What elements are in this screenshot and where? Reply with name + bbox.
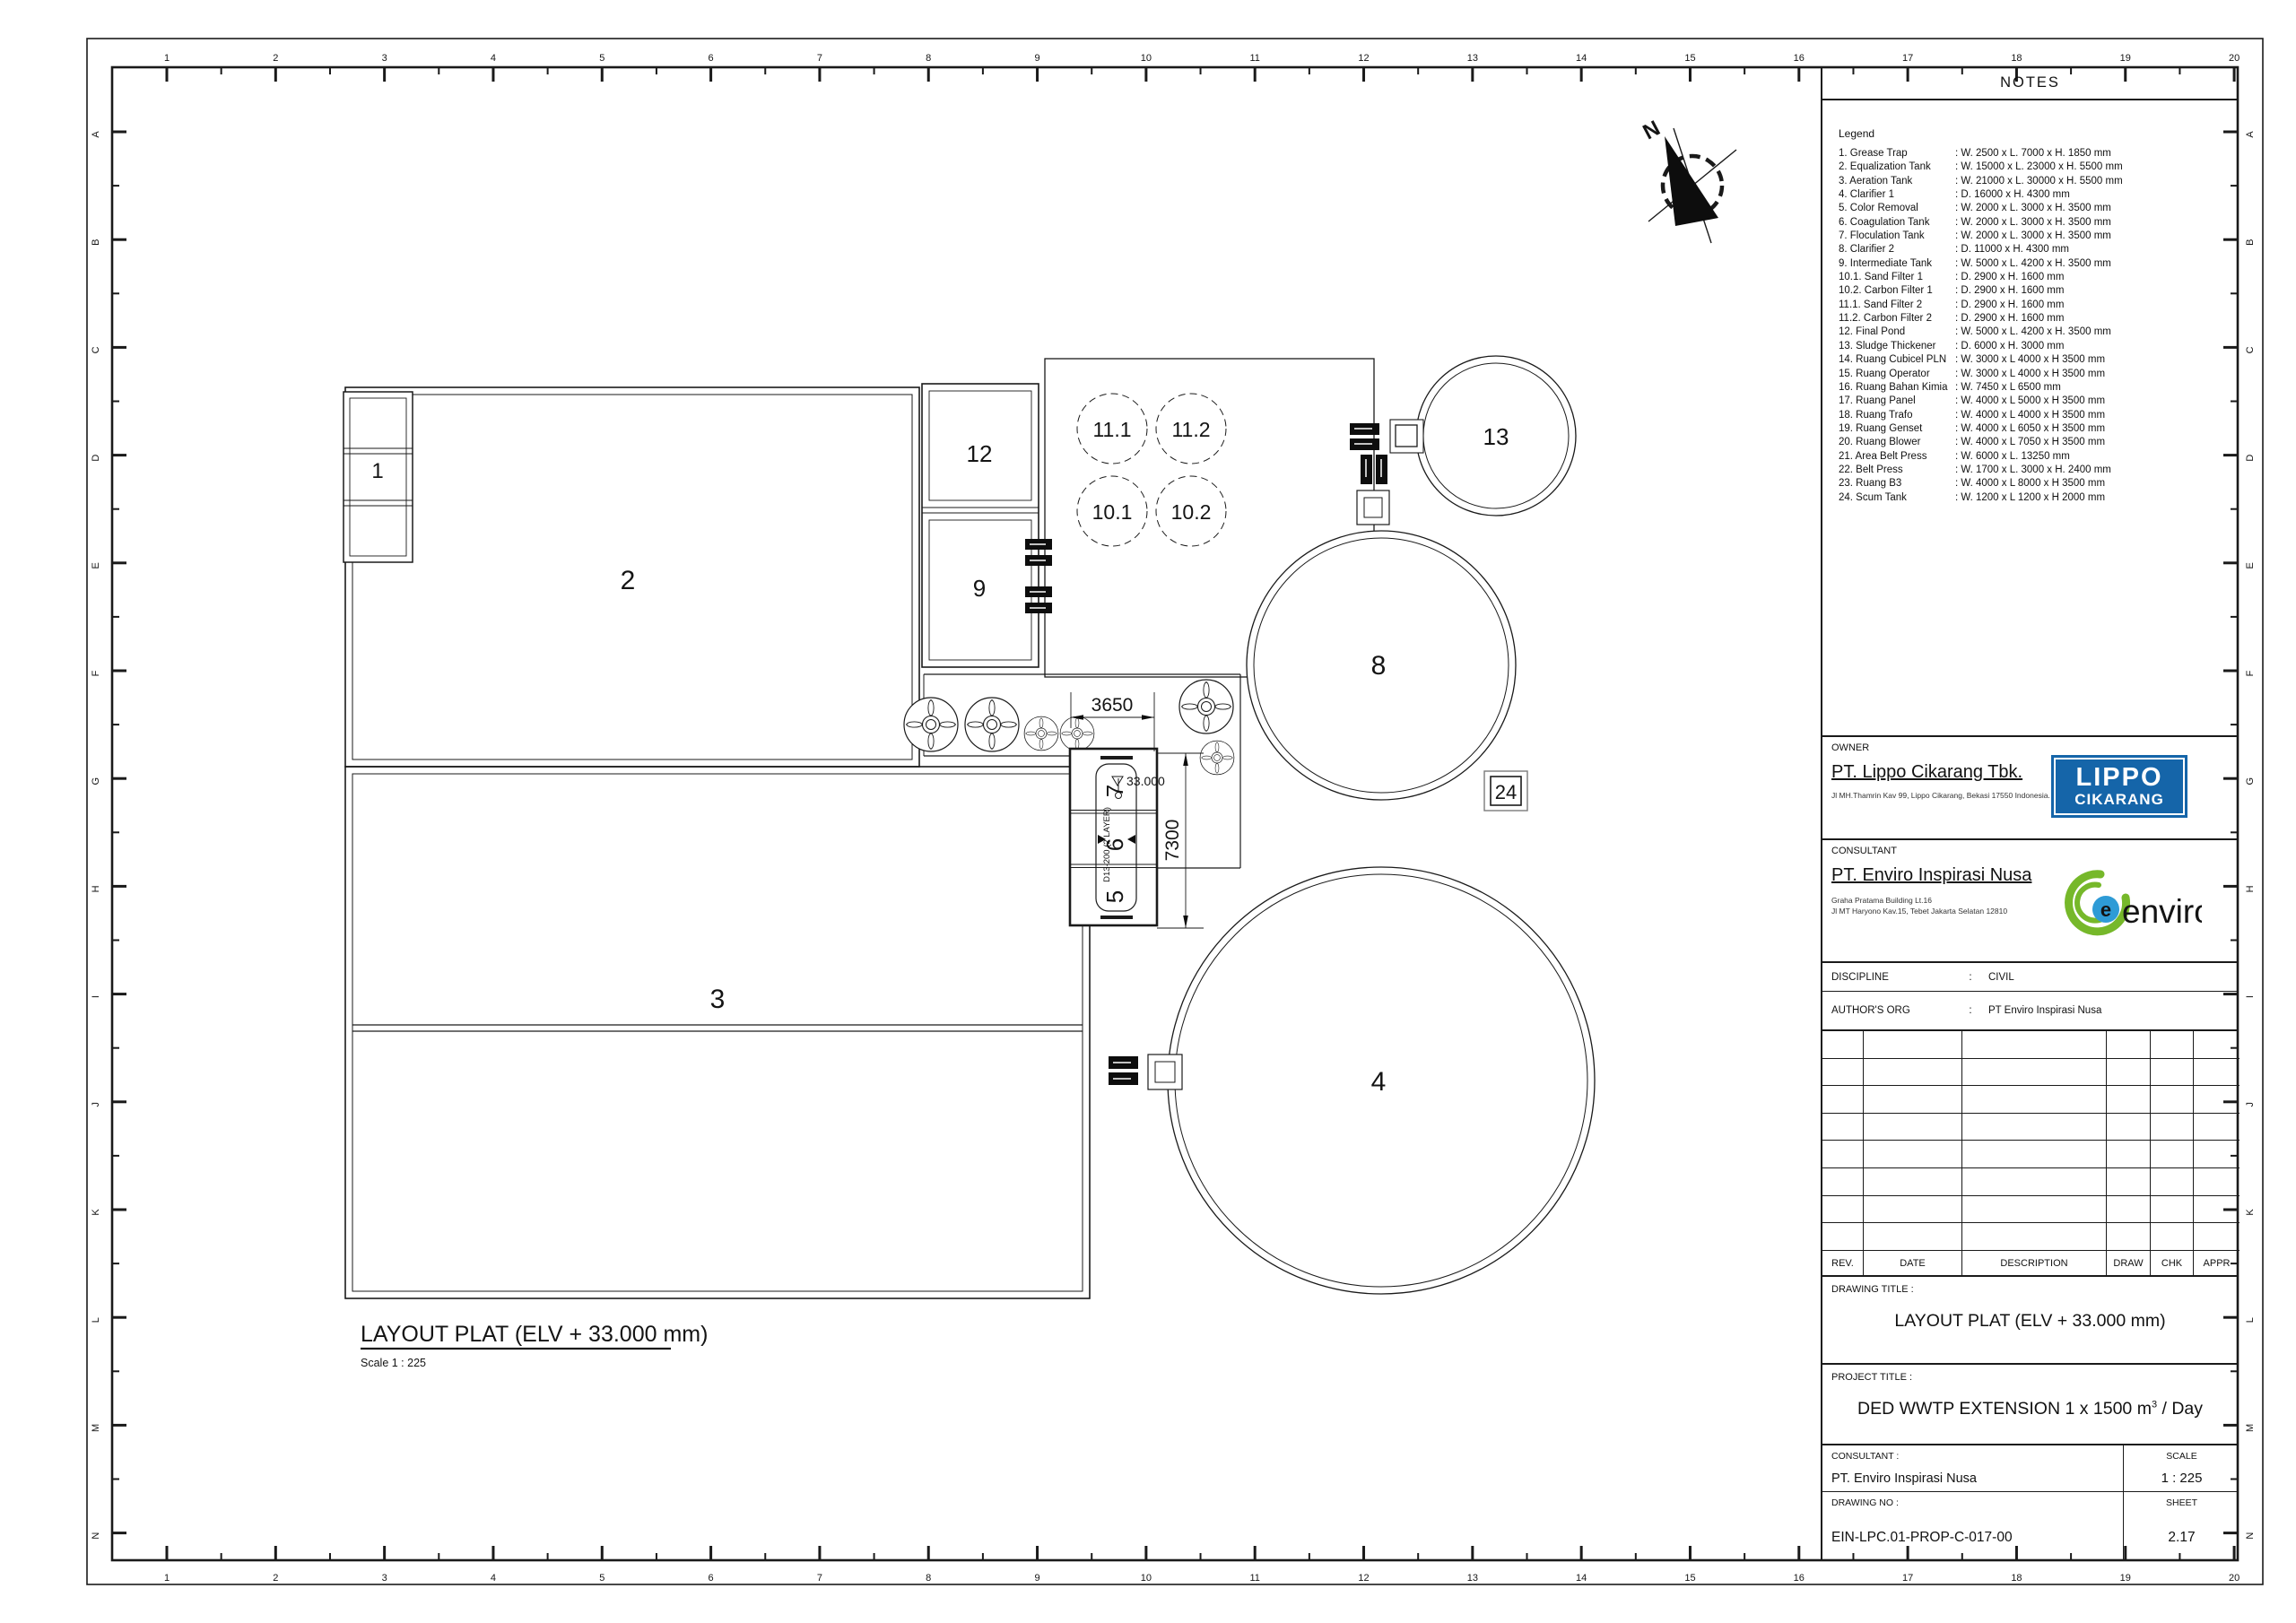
legend-section: Legend 1. Grease Trap: W. 2500 x L. 7000… [1822,100,2238,735]
ruler-label: 3 [382,1573,387,1584]
legend-item-label: 2. Equalization Tank [1839,161,1955,174]
label-equalization-tank: 2 [621,566,636,595]
ruler-label: 18 [2011,1573,2022,1584]
revision-cell [1962,1141,2107,1168]
aeration-tank-outline [345,767,1090,1298]
legend-list: 1. Grease Trap: W. 2500 x L. 7000 x H. 1… [1839,147,2123,505]
ruler-label: 16 [1794,53,1805,64]
legend-item: 2. Equalization Tank: W. 15000 x L. 2300… [1839,161,2123,174]
revision-cell [1962,1168,2107,1196]
legend-item-spec: : W. 4000 x L 5000 x H 3500 mm [1955,395,2105,408]
ruler-label: 16 [1794,1573,1805,1584]
drawing-no-value: EIN-LPC.01-PROP-C-017-00 [1831,1530,2013,1546]
revision-row [1822,1059,2238,1087]
ruler-label: D [91,455,101,462]
legend-item: 1. Grease Trap: W. 2500 x L. 7000 x H. 1… [1839,147,2123,161]
project-title-section: PROJECT TITLE : DED WWTP EXTENSION 1 x 1… [1822,1363,2238,1444]
revision-cell [2194,1059,2239,1087]
label-floculation-tank: 7 [1101,785,1128,797]
legend-item-label: 24. Scum Tank [1839,491,1955,505]
ruler-label: 18 [2011,53,2022,64]
ruler-label: D [2245,455,2256,462]
ruler-label: J [91,1102,101,1107]
legend-item: 11.1. Sand Filter 2: D. 2900 x H. 1600 m… [1839,299,2123,312]
legend-item: 3. Aeration Tank: W. 21000 x L. 30000 x … [1839,175,2123,188]
legend-item-label: 4. Clarifier 1 [1839,188,1955,202]
dim-7300-text: 7300 [1162,820,1183,862]
revision-row [1822,1223,2238,1251]
ruler-label: 1 [164,1573,170,1584]
discipline-value: CIVIL [1988,972,2014,983]
discipline-separator: : [1952,972,1988,983]
legend-item-label: 12. Final Pond [1839,325,1955,339]
ruler-label: C [2245,346,2256,353]
ruler-label: 6 [709,1573,714,1584]
legend-item-spec: : D. 11000 x H. 4300 mm [1955,243,2069,256]
legend-item: 24. Scum Tank: W. 1200 x L 1200 x H 2000… [1839,491,2123,505]
revision-row [1822,1031,2238,1059]
revision-cell [1864,1031,1962,1059]
ruler-label: 3 [382,53,387,64]
label-intermediate-tank: 9 [973,575,986,602]
legend-item: 4. Clarifier 1: D. 16000 x H. 4300 mm [1839,188,2123,202]
legend-item-spec: : W. 15000 x L. 23000 x H. 5500 mm [1955,161,2123,174]
ruler-label: M [91,1424,101,1432]
legend-item-spec: : W. 4000 x L 6050 x H 3500 mm [1955,422,2105,436]
revision-cell [1864,1114,1962,1141]
ruler-label: 7 [817,53,822,64]
revision-row [1822,1114,2238,1141]
legend-item-label: 21. Area Belt Press [1839,450,1955,464]
legend-item-label: 16. Ruang Bahan Kimia [1839,381,1955,395]
pump-group-clarifier1 [1109,1055,1182,1089]
revision-cell [1864,1141,1962,1168]
revision-cell [1822,1031,1864,1059]
legend-item: 10.2. Carbon Filter 1: D. 2900 x H. 1600… [1839,284,2123,298]
revision-cell [2151,1059,2194,1087]
ruler-label: 10 [1141,53,1152,64]
ruler-label: 9 [1034,1573,1039,1584]
revision-cell [1864,1168,1962,1196]
revision-cell [1822,1168,1864,1196]
legend-item-label: 7. Floculation Tank [1839,230,1955,243]
legend-item-label: 9. Intermediate Tank [1839,257,1955,271]
legend-item-spec: : D. 2900 x H. 1600 mm [1955,312,2064,325]
ruler-label: 17 [1902,1573,1913,1584]
revision-row [1822,1168,2238,1196]
consultant-company: PT. Enviro Inspirasi Nusa [1831,865,2031,886]
ruler-label: 8 [926,53,931,64]
legend-item-spec: : W. 4000 x L 8000 x H 3500 mm [1955,477,2105,490]
legend-item: 19. Ruang Genset: W. 4000 x L 6050 x H 3… [1839,422,2123,436]
ruler-label: 19 [2120,53,2131,64]
revision-empty-rows [1822,1031,2238,1251]
ruler-label: 15 [1684,53,1695,64]
label-carbon-filter-1: 10.2 [1171,500,1212,524]
scale-label: SCALE [2124,1451,2239,1462]
revision-cell [2151,1141,2194,1168]
ruler-label: 13 [1467,1573,1478,1584]
legend-item-spec: : D. 6000 x H. 3000 mm [1955,340,2064,353]
drawing-title-value: LAYOUT PLAT (ELV + 33.000 mm) [1822,1311,2238,1332]
revision-cell [2107,1223,2151,1251]
legend-item: 12. Final Pond: W. 5000 x L. 4200 x H. 3… [1839,325,2123,339]
owner-company: PT. Lippo Cikarang Tbk. [1831,762,2022,783]
legend-item-label: 11.1. Sand Filter 2 [1839,299,1955,312]
ruler-label: 2 [273,1573,278,1584]
owner-section: OWNER PT. Lippo Cikarang Tbk. Jl MH.Tham… [1822,735,2238,838]
revision-cell [1864,1196,1962,1224]
scale-value: 1 : 225 [2124,1471,2239,1486]
legend-item: 22. Belt Press: W. 1700 x L. 3000 x H. 2… [1839,464,2123,477]
authors-org-label: AUTHOR'S ORG [1822,1005,1952,1016]
legend-item-spec: : W. 5000 x L. 4200 x H. 3500 mm [1955,325,2111,339]
revision-cell [2107,1031,2151,1059]
ruler-label: 6 [709,53,714,64]
enviro-logo-text: enviro [2122,893,2202,930]
revision-cell [2151,1114,2194,1141]
ruler-label: 14 [1576,1573,1587,1584]
lippo-logo-text2: CIKARANG [2074,791,2164,808]
dim-3650-text: 3650 [1091,695,1134,716]
ruler-label: F [2245,670,2256,676]
authors-org-row: AUTHOR'S ORG : PT Enviro Inspirasi Nusa [1822,991,2238,1029]
revision-cell [1962,1059,2107,1087]
legend-item: 15. Ruang Operator: W. 3000 x L 4000 x H… [1839,368,2123,381]
legend-item-spec: : D. 2900 x H. 1600 mm [1955,271,2064,284]
final-pond-outline [922,384,1039,667]
plan-caption: LAYOUT PLAT (ELV + 33.000 mm) Scale 1 : … [361,1322,708,1369]
drawing-title-label: DRAWING TITLE : [1831,1284,1914,1295]
ruler-label: 4 [491,53,496,64]
owner-address: Jl MH.Thamrin Kav 99, Lippo Cikarang, Be… [1831,791,2050,800]
lippo-logo-frame: LIPPO CIKARANG [2054,758,2185,815]
enviro-logo: e enviro [2054,858,2202,955]
draw-col-header: DRAW [2107,1251,2151,1276]
elevation-text: 33.000 [1126,774,1165,788]
legend-item: 13. Sludge Thickener: D. 6000 x H. 3000 … [1839,340,2123,353]
ruler-label: 11 [1249,1573,1259,1584]
ruler-label: B [2245,239,2256,246]
revision-cell [1864,1223,1962,1251]
consultant-scale-row: CONSULTANT : PT. Enviro Inspirasi Nusa S… [1822,1444,2238,1491]
ruler-label: 20 [2229,1573,2239,1584]
revision-cell [1962,1196,2107,1224]
ruler-label: 8 [926,1573,931,1584]
revision-cell [2107,1196,2151,1224]
ruler-label: 13 [1467,53,1478,64]
revision-cell [2107,1059,2151,1087]
lippo-logo-text1: LIPPO [2075,765,2162,791]
legend-item-label: 19. Ruang Genset [1839,422,1955,436]
legend-item: 14. Ruang Cubicel PLN: W. 3000 x L 4000 … [1839,353,2123,367]
legend-item-label: 1. Grease Trap [1839,147,1955,161]
ruler-label: H [91,885,101,892]
legend-item-spec: : W. 3000 x L 4000 x H 3500 mm [1955,353,2105,367]
drawing-no-sheet-row: DRAWING NO : EIN-LPC.01-PROP-C-017-00 SH… [1822,1491,2238,1560]
legend-item-label: 3. Aeration Tank [1839,175,1955,188]
label-grease-trap: 1 [371,459,383,483]
ruler-label: 2 [273,53,278,64]
label-sand-filter-1: 10.1 [1092,500,1133,524]
legend-item-spec: : W. 21000 x L. 30000 x H. 5500 mm [1955,175,2123,188]
rebar-note-text: D13-200 (2 LAYER) [1102,807,1112,882]
legend-item: 20. Ruang Blower: W. 4000 x L 7050 x H 3… [1839,436,2123,449]
consultant-address2: Jl MT Haryono Kav.15, Tebet Jakarta Sela… [1831,907,2007,916]
legend-item-label: 6. Coagulation Tank [1839,216,1955,230]
revision-cell [2194,1031,2239,1059]
ruler-label: N [2245,1532,2256,1540]
revision-cell [2194,1141,2239,1168]
ruler-label: H [2245,885,2256,892]
sheet-cell: SHEET 2.17 [2123,1492,2239,1560]
ruler-label: 1 [164,53,170,64]
revision-cell [2194,1114,2239,1141]
project-title-prefix: DED WWTP EXTENSION 1 x 1500 m [1857,1399,2152,1419]
legend-item-spec: : W. 2000 x L. 3000 x H. 3500 mm [1955,202,2111,215]
discipline-row: DISCIPLINE : CIVIL [1822,961,2238,991]
owner-label: OWNER [1831,742,1869,753]
revision-cell [1962,1223,2107,1251]
legend-item-label: 13. Sludge Thickener [1839,340,1955,353]
ruler-label: G [2245,777,2256,785]
revision-cell [2194,1168,2239,1196]
revision-cell [1962,1114,2107,1141]
legend-item: 21. Area Belt Press: W. 6000 x L. 13250 … [1839,450,2123,464]
legend-item-label: 20. Ruang Blower [1839,436,1955,449]
ruler-label: I [2245,995,2256,998]
rev-col-header: REV. [1822,1251,1864,1276]
legend-item-spec: : D. 2900 x H. 1600 mm [1955,299,2064,312]
ruler-label: 20 [2229,53,2239,64]
date-col-header: DATE [1864,1251,1962,1276]
label-final-pond: 12 [967,440,993,467]
legend-item-spec: : W. 4000 x L 7050 x H 3500 mm [1955,436,2105,449]
legend-item: 9. Intermediate Tank: W. 5000 x L. 4200 … [1839,257,2123,271]
label-scum-tank: 24 [1495,781,1517,803]
ruler-label: C [91,346,101,353]
legend-item-spec: : W. 1200 x L 1200 x H 2000 mm [1955,491,2105,505]
revision-cell [2151,1223,2194,1251]
authors-org-value: PT Enviro Inspirasi Nusa [1988,1005,2101,1016]
legend-item-label: 10.2. Carbon Filter 1 [1839,284,1955,298]
title-block: NOTES Legend 1. Grease Trap: W. 2500 x L… [1821,67,2238,1560]
revision-table: REV. DATE DESCRIPTION DRAW CHK APPR [1822,1029,2238,1275]
legend-item: 18. Ruang Trafo: W. 4000 x L 4000 x H 35… [1839,409,2123,422]
revision-cell [1822,1059,1864,1087]
ruler-label: G [91,777,101,785]
description-col-header: DESCRIPTION [1962,1251,2107,1276]
ruler-label: 4 [491,1573,496,1584]
legend-item-label: 15. Ruang Operator [1839,368,1955,381]
legend-item: 7. Floculation Tank: W. 2000 x L. 3000 x… [1839,230,2123,243]
sheet-value: 2.17 [2124,1530,2239,1546]
project-title-value: DED WWTP EXTENSION 1 x 1500 m3 / Day [1822,1399,2238,1419]
revision-cell [1864,1086,1962,1114]
revision-cell [1822,1114,1864,1141]
label-aeration-tank: 3 [710,985,726,1014]
revision-cell [1822,1086,1864,1114]
revision-cell [2151,1196,2194,1224]
legend-title: Legend [1839,127,1874,140]
ruler-label: 11 [1249,53,1259,64]
notes-title: NOTES [2000,74,2060,91]
revision-cell [2151,1168,2194,1196]
legend-item: 23. Ruang B3: W. 4000 x L 8000 x H 3500 … [1839,477,2123,490]
legend-item-spec: : W. 7450 x L 6500 mm [1955,381,2061,395]
ruler-label: J [2245,1102,2256,1107]
drawing-sheet: 1122334455667788991010111112121313141415… [0,0,2296,1623]
legend-item-spec: : W. 2000 x L. 3000 x H. 3500 mm [1955,230,2111,243]
ruler-label: A [91,131,101,138]
ruler-label: 15 [1684,1573,1695,1584]
ruler-label: 5 [599,53,604,64]
notes-header: NOTES [1822,67,2238,100]
revision-cell [2107,1168,2151,1196]
drawing-title-section: DRAWING TITLE : LAYOUT PLAT (ELV + 33.00… [1822,1275,2238,1363]
ruler-label: A [2245,131,2256,138]
label-carbon-filter-2: 11.2 [1171,418,1210,441]
revision-cell [2194,1086,2239,1114]
legend-item-label: 11.2. Carbon Filter 2 [1839,312,1955,325]
consultant-address1: Graha Pratama Building Lt.16 [1831,896,1932,905]
lippo-cikarang-logo: LIPPO CIKARANG [2051,755,2187,818]
revision-header-row: REV. DATE DESCRIPTION DRAW CHK APPR [1822,1251,2238,1276]
ruler-label: N [91,1532,101,1540]
revision-cell [2107,1141,2151,1168]
ruler-label: K [2245,1209,2256,1216]
legend-item-label: 14. Ruang Cubicel PLN [1839,353,1955,367]
revision-row [1822,1086,2238,1114]
consultant-row-value: PT. Enviro Inspirasi Nusa [1831,1471,1977,1486]
legend-item: 6. Coagulation Tank: W. 2000 x L. 3000 x… [1839,216,2123,230]
ruler-label: 5 [599,1573,604,1584]
sheet-label: SHEET [2124,1497,2239,1508]
revision-cell [2151,1031,2194,1059]
label-color-removal: 5 [1101,890,1128,903]
consultant-section: CONSULTANT PT. Enviro Inspirasi Nusa Gra… [1822,838,2238,961]
ruler-label: 17 [1902,53,1913,64]
legend-item-spec: : W. 2000 x L. 3000 x H. 3500 mm [1955,216,2111,230]
caption-scale: Scale 1 : 225 [361,1357,426,1369]
consultant-label: CONSULTANT [1831,846,1897,856]
drawing-no-label: DRAWING NO : [1831,1497,1899,1508]
legend-item: 5. Color Removal: W. 2000 x L. 3000 x H.… [1839,202,2123,215]
ruler-label: 7 [817,1573,822,1584]
legend-item-label: 17. Ruang Panel [1839,395,1955,408]
revision-cell [1864,1059,1962,1087]
legend-item-label: 10.1. Sand Filter 1 [1839,271,1955,284]
ruler-label: 12 [1358,1573,1369,1584]
revision-cell [2107,1114,2151,1141]
label-sludge-thickener: 13 [1483,423,1509,450]
revision-cell [2151,1086,2194,1114]
legend-item: 10.1. Sand Filter 1: D. 2900 x H. 1600 m… [1839,271,2123,284]
legend-item-spec: : W. 6000 x L. 13250 mm [1955,450,2070,464]
discipline-label: DISCIPLINE [1822,972,1952,983]
revision-cell [2107,1086,2151,1114]
ruler-label: I [91,995,101,998]
project-title-suffix: / Day [2157,1399,2203,1419]
project-title-label: PROJECT TITLE : [1831,1372,1912,1383]
legend-item: 16. Ruang Bahan Kimia: W. 7450 x L 6500 … [1839,381,2123,395]
legend-item-spec: : D. 2900 x H. 1600 mm [1955,284,2064,298]
legend-item-label: 18. Ruang Trafo [1839,409,1955,422]
revision-cell [2194,1223,2239,1251]
north-arrow: N [1639,116,1736,243]
scale-cell: SCALE 1 : 225 [2123,1445,2239,1491]
legend-item-spec: : W. 1700 x L. 3000 x H. 2400 mm [1955,464,2111,477]
ruler-label: E [91,562,101,568]
enviro-logo-e: e [2100,898,2111,921]
legend-item-spec: : D. 16000 x H. 4300 mm [1955,188,2070,202]
legend-item-spec: : W. 5000 x L. 4200 x H. 3500 mm [1955,257,2111,271]
ruler-label: 14 [1576,53,1587,64]
ruler-label: L [91,1317,101,1323]
ruler-label: F [91,670,101,676]
revision-cell [1962,1031,2107,1059]
legend-item-spec: : W. 2500 x L. 7000 x H. 1850 mm [1955,147,2111,161]
ruler-label: K [91,1209,101,1216]
revision-row [1822,1141,2238,1168]
legend-item: 8. Clarifier 2: D. 11000 x H. 4300 mm [1839,243,2123,256]
legend-item: 11.2. Carbon Filter 2: D. 2900 x H. 1600… [1839,312,2123,325]
caption-title: LAYOUT PLAT (ELV + 33.000 mm) [361,1322,708,1347]
legend-item-label: 22. Belt Press [1839,464,1955,477]
label-clarifier-1: 4 [1371,1067,1387,1097]
legend-item-label: 8. Clarifier 2 [1839,243,1955,256]
ruler-label: L [2245,1317,2256,1323]
legend-item-spec: : W. 3000 x L 4000 x H 3500 mm [1955,368,2105,381]
ruler-label: 12 [1358,53,1369,64]
ruler-label: B [91,239,101,246]
revision-cell [1822,1141,1864,1168]
legend-item-label: 5. Color Removal [1839,202,1955,215]
revision-row [1822,1196,2238,1224]
ruler-label: M [2245,1424,2256,1432]
revision-cell [1822,1196,1864,1224]
authors-org-separator: : [1952,1005,1988,1016]
revision-cell [1962,1086,2107,1114]
legend-item-spec: : W. 4000 x L 4000 x H 3500 mm [1955,409,2105,422]
ruler-label: 10 [1141,1573,1152,1584]
ruler-label: 9 [1034,53,1039,64]
consultant-row-label: CONSULTANT : [1831,1451,1899,1462]
label-sand-filter-2: 11.1 [1092,418,1131,441]
legend-item: 17. Ruang Panel: W. 4000 x L 5000 x H 35… [1839,395,2123,408]
ruler-label: 19 [2120,1573,2131,1584]
revision-cell [2194,1196,2239,1224]
appr-col-header: APPR [2194,1251,2239,1276]
revision-cell [1822,1223,1864,1251]
label-clarifier-2: 8 [1371,651,1387,681]
north-label: N [1639,116,1664,144]
legend-item-label: 23. Ruang B3 [1839,477,1955,490]
ruler-label: E [2245,562,2256,568]
chk-col-header: CHK [2151,1251,2194,1276]
